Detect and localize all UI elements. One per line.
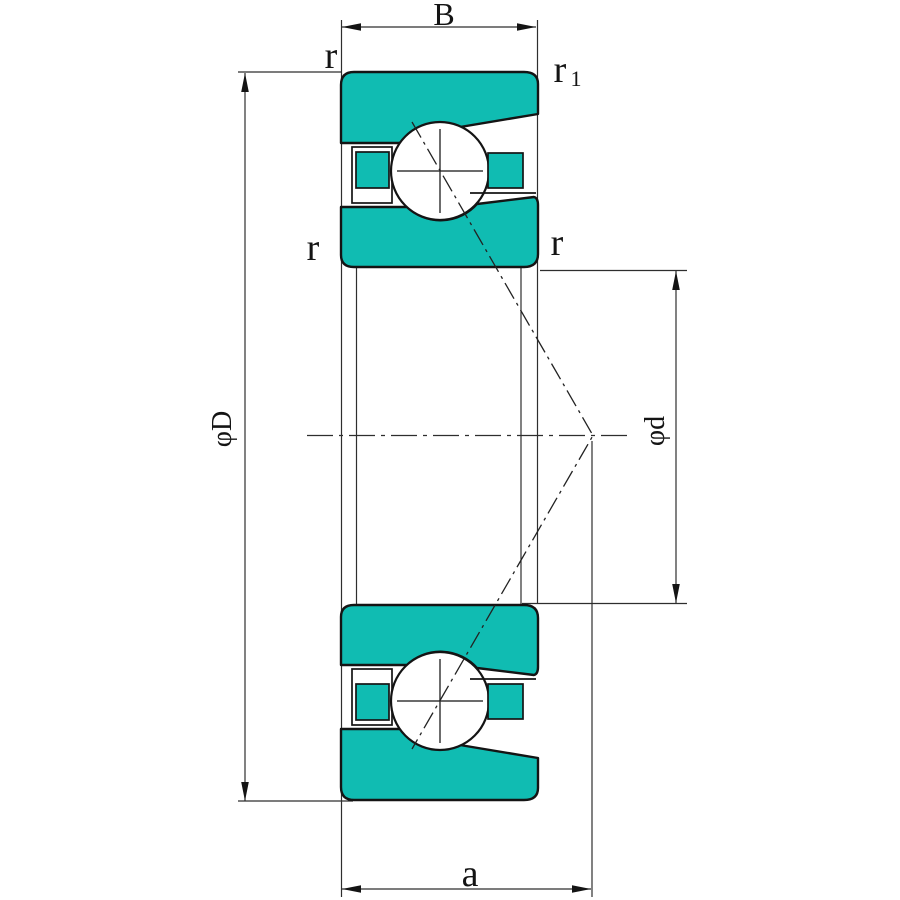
label-width-B: B — [433, 0, 454, 32]
arrow-phid-bottom — [672, 584, 680, 603]
label-chamfer-r1-subscript: 1 — [571, 66, 582, 91]
cage-bar-left-bottom — [356, 684, 389, 720]
arrow-a-right — [572, 885, 591, 893]
arrow-B-left — [342, 23, 361, 31]
label-load-center-a: a — [462, 853, 479, 895]
label-chamfer-r-top: r — [325, 35, 338, 77]
bearing-drawing-canvas: B r r 1 r r φD φd a — [0, 0, 900, 900]
cage-bar-left-top — [356, 152, 389, 188]
cage-bar-right-bottom — [488, 684, 523, 719]
arrow-phiD-top — [241, 73, 249, 92]
arrow-B-right — [517, 23, 536, 31]
bottom-bearing-section — [341, 605, 538, 800]
arrow-phid-top — [672, 271, 680, 290]
arrow-a-left — [342, 885, 361, 893]
cage-bar-right-top — [488, 153, 523, 188]
bearing-cross-section-diagram: B r r 1 r r φD φd a — [0, 0, 900, 900]
label-chamfer-r-mid-right: r — [551, 222, 564, 264]
arrow-phiD-bottom — [241, 782, 249, 801]
label-outer-diameter-phiD: φD — [207, 411, 238, 447]
label-chamfer-r-mid-left: r — [307, 227, 320, 269]
label-chamfer-r1-base: r — [554, 49, 567, 91]
label-bore-diameter-phid: φd — [640, 416, 671, 446]
